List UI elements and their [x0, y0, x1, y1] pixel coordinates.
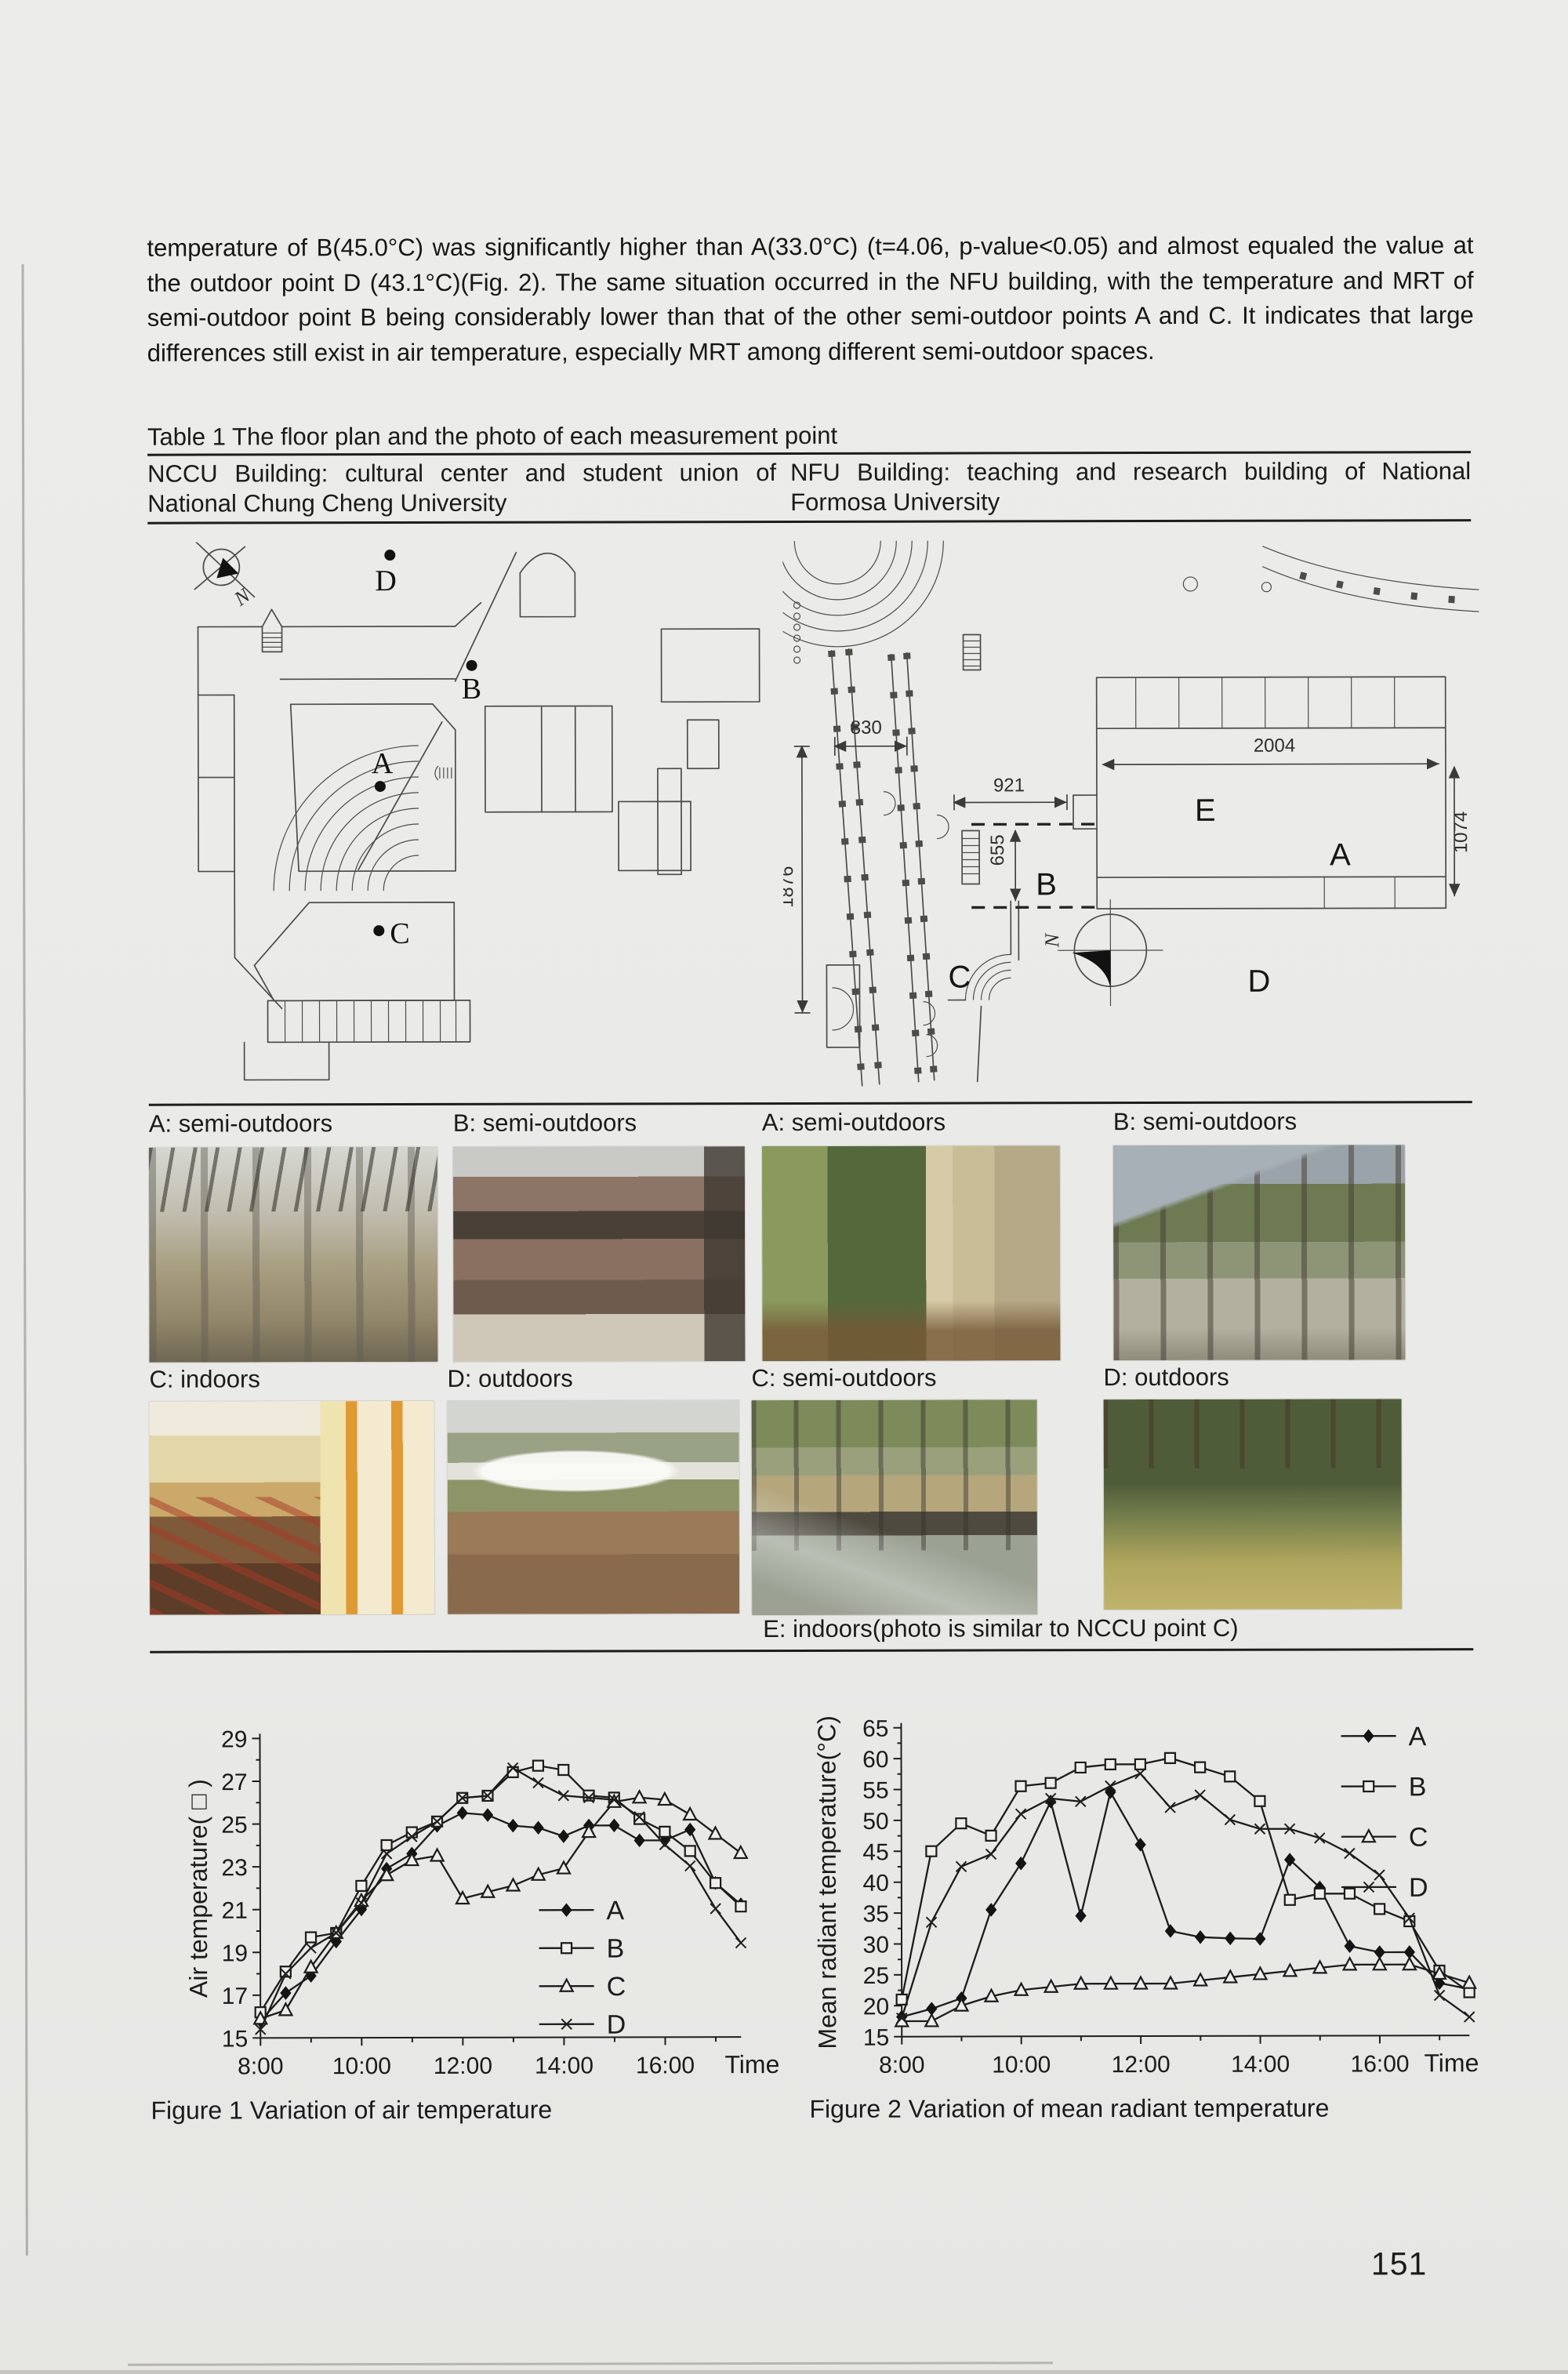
nccu-compass-icon: N — [194, 542, 255, 611]
diamond-marker-icon — [685, 1824, 695, 1836]
y-tick-label: 40 — [862, 1871, 888, 1897]
figure1-air-temperature-chart: 15171921232527298:0010:0012:0014:0016:00… — [180, 1714, 784, 2090]
caption-nfu-a: A: semi-outdoors — [762, 1109, 946, 1137]
square-marker-icon — [897, 1995, 907, 2005]
square-marker-icon — [306, 1933, 316, 1943]
y-tick-label: 65 — [862, 1716, 888, 1742]
square-marker-icon — [533, 1761, 543, 1771]
diamond-marker-icon — [1225, 1932, 1236, 1944]
nfu-dim-655: 655 — [987, 834, 1008, 866]
triangle-marker-icon — [709, 1827, 721, 1839]
x-tick-label: 8:00 — [238, 2053, 283, 2079]
table1-header-row: NCCU Building: cultural center and stude… — [147, 456, 1471, 519]
y-tick-label: 30 — [863, 1933, 889, 1958]
series-A-line — [260, 1813, 742, 2021]
square-marker-icon — [659, 1827, 670, 1837]
diamond-marker-icon — [1076, 1910, 1086, 1922]
nfu-compass-icon: N — [1040, 899, 1163, 1006]
square-marker-icon — [1374, 1904, 1385, 1914]
x-tick-label: 14:00 — [1231, 2052, 1290, 2078]
y-tick-label: 21 — [222, 1898, 248, 1924]
square-marker-icon — [558, 1765, 568, 1775]
scan-edge-artifact-bottom — [128, 2361, 1053, 2365]
x-tick-label: 12:00 — [434, 2053, 492, 2079]
square-marker-icon — [1076, 1762, 1086, 1773]
triangle-marker-icon — [684, 1808, 696, 1820]
diamond-marker-icon — [483, 1809, 493, 1821]
square-marker-icon — [1345, 1889, 1355, 1899]
square-marker-icon — [956, 1818, 966, 1828]
photo-nccu-d-outdoors — [448, 1400, 740, 1614]
nfu-dim-1876: 1876 — [782, 866, 797, 908]
y-axis — [260, 1733, 260, 2038]
caption-nccu-b: B: semi-outdoors — [453, 1109, 637, 1137]
nfu-point-d-label: D — [1247, 964, 1270, 999]
x-tick-label: 16:00 — [1350, 2051, 1409, 2077]
photo-nccu-c-indoors — [150, 1401, 435, 1615]
x-axis-title: Time — [724, 2050, 779, 2078]
triangle-marker-icon — [279, 2003, 292, 2015]
table1-title: Table 1 The floor plan and the photo of … — [147, 422, 837, 452]
y-tick-label: 15 — [222, 2026, 248, 2052]
nfu-dim-921: 921 — [993, 775, 1025, 796]
square-marker-icon — [1046, 1778, 1056, 1788]
x-tick-label: 12:00 — [1112, 2052, 1171, 2078]
y-tick-label: 17 — [222, 1984, 248, 2009]
y-tick-label: 55 — [862, 1778, 888, 1804]
table1-header-rule — [147, 519, 1471, 525]
scanned-paper-page: temperature of B(45.0°C) was significant… — [0, 0, 1568, 2374]
diamond-marker-icon — [1135, 1839, 1145, 1851]
figure1-caption: Figure 1 Variation of air temperature — [151, 2096, 552, 2125]
y-tick-label: 23 — [221, 1855, 247, 1881]
legend-label-D: D — [607, 2010, 626, 2040]
scan-bottom-band — [0, 2370, 1568, 2374]
nfu-point-c-label: C — [948, 960, 971, 995]
x-tick-label: 14:00 — [535, 2053, 593, 2079]
diamond-marker-icon — [609, 1819, 619, 1831]
square-marker-icon — [1225, 1771, 1235, 1781]
y-tick-label: 45 — [862, 1839, 888, 1865]
y-tick-label: 50 — [862, 1809, 888, 1835]
triangle-marker-icon — [506, 1879, 519, 1890]
nfu-floor-plan: 830 1876 921 655 B E A 2004 1074 — [782, 532, 1490, 1113]
figure2-mean-radiant-temperature-chart: 15202530354045505560658:0010:0012:0014:0… — [808, 1712, 1483, 2089]
y-tick-label: 60 — [862, 1747, 888, 1773]
diamond-marker-icon — [1363, 1730, 1374, 1742]
x-tick-label: 8:00 — [879, 2053, 924, 2078]
intro-paragraph: temperature of B(45.0°C) was significant… — [147, 228, 1473, 371]
nccu-point-d-dot — [384, 550, 395, 561]
square-marker-icon — [685, 1846, 695, 1856]
caption-nccu-a: A: semi-outdoors — [149, 1109, 332, 1138]
triangle-marker-icon — [633, 1791, 646, 1802]
square-marker-icon — [1165, 1753, 1175, 1763]
table1-bottom-rule — [150, 1648, 1473, 1653]
y-tick-label: 20 — [863, 1994, 889, 2020]
scan-edge-artifact — [22, 264, 28, 2256]
photo-nccu-b-semi-outdoors — [453, 1146, 746, 1362]
svg-text:N: N — [1040, 932, 1063, 948]
photo-nfu-b-semi-outdoors — [1113, 1145, 1406, 1360]
table1-header-nccu: NCCU Building: cultural center and stude… — [147, 458, 776, 519]
square-marker-icon — [1254, 1796, 1265, 1806]
photo-nfu-a-semi-outdoors — [762, 1145, 1061, 1361]
series-B-line — [902, 1758, 1470, 2000]
page-number: 151 — [1371, 2245, 1428, 2282]
square-marker-icon — [1135, 1759, 1145, 1770]
x-axis-title: Time — [1424, 2049, 1479, 2077]
legend-label-A: A — [1409, 1722, 1427, 1751]
legend-label-A: A — [606, 1896, 624, 1926]
x-axis — [260, 2037, 741, 2038]
diamond-marker-icon — [533, 1821, 543, 1834]
square-marker-icon — [926, 1846, 936, 1857]
table1-header-nfu: NFU Building: teaching and research buil… — [790, 456, 1471, 517]
page-content: temperature of B(45.0°C) was significant… — [0, 0, 1568, 2374]
diamond-marker-icon — [1165, 1925, 1175, 1937]
diamond-marker-icon — [561, 1904, 572, 1916]
diamond-marker-icon — [558, 1830, 568, 1842]
y-axis-title: Mean radiant temperature(°C) — [812, 1715, 841, 2049]
y-tick-label: 25 — [221, 1813, 247, 1839]
legend-label-B: B — [1409, 1772, 1427, 1802]
nfu-dim-2004: 2004 — [1254, 735, 1295, 757]
nccu-point-b-dot — [466, 660, 477, 671]
legend-label-C: C — [607, 1972, 626, 2002]
square-marker-icon — [1315, 1889, 1325, 1899]
diamond-marker-icon — [1196, 1931, 1206, 1944]
nccu-floor-plan: N D B A C — [179, 541, 768, 1099]
nccu-point-b-label: B — [462, 673, 481, 706]
nfu-point-e-label: E — [1195, 793, 1216, 828]
photo-nccu-a-semi-outdoors — [149, 1147, 438, 1363]
y-axis-title: Air temperature( □ ) — [184, 1779, 213, 1998]
y-tick-label: 15 — [863, 2025, 889, 2051]
diamond-marker-icon — [1345, 1940, 1355, 1952]
nccu-point-c-label: C — [390, 917, 409, 950]
x-tick-label: 16:00 — [636, 2053, 695, 2078]
y-tick-label: 29 — [221, 1726, 247, 1752]
x-tick-label: 10:00 — [992, 2052, 1051, 2078]
y-tick-label: 25 — [863, 1963, 889, 1989]
nfu-point-a-label: A — [1330, 837, 1351, 872]
square-marker-icon — [735, 1901, 746, 1911]
square-marker-icon — [382, 1840, 392, 1850]
legend-label-D: D — [1409, 1873, 1428, 1903]
square-marker-icon — [710, 1878, 720, 1888]
square-marker-icon — [1363, 1781, 1374, 1791]
legend-label-C: C — [1409, 1823, 1428, 1853]
square-marker-icon — [986, 1831, 996, 1841]
nfu-point-b-label: B — [1036, 867, 1057, 902]
nccu-point-c-dot — [373, 925, 384, 936]
square-marker-icon — [1105, 1759, 1116, 1770]
triangle-marker-icon — [735, 1846, 747, 1858]
series-D-line — [260, 1767, 742, 2029]
table1-top-rule — [147, 451, 1471, 456]
nfu-e-note: E: indoors(photo is similar to NCCU poin… — [763, 1614, 1239, 1643]
square-marker-icon — [1195, 1762, 1205, 1773]
nccu-point-a-dot — [375, 781, 386, 792]
y-tick-label: 35 — [863, 1901, 889, 1927]
nfu-dim-1074: 1074 — [1450, 811, 1472, 853]
x-tick-label: 10:00 — [332, 2053, 391, 2079]
triangle-marker-icon — [431, 1849, 444, 1860]
legend-label-B: B — [607, 1934, 625, 1964]
square-marker-icon — [584, 1791, 594, 1801]
nccu-point-d-label: D — [375, 564, 397, 597]
diamond-marker-icon — [634, 1834, 644, 1846]
photo-nfu-d-outdoors — [1104, 1399, 1403, 1610]
figure2-caption: Figure 2 Variation of mean radiant tempe… — [809, 2094, 1329, 2124]
caption-nccu-c: C: indoors — [149, 1365, 260, 1393]
svg-text:N: N — [229, 583, 255, 611]
photo-nfu-c-semi-outdoors — [752, 1399, 1038, 1615]
nfu-dim-830: 830 — [851, 717, 882, 739]
caption-nccu-d: D: outdoors — [447, 1365, 572, 1393]
square-marker-icon — [356, 1881, 366, 1891]
caption-nfu-d: D: outdoors — [1103, 1363, 1229, 1392]
square-marker-icon — [1285, 1895, 1295, 1905]
diamond-marker-icon — [508, 1820, 518, 1832]
diamond-marker-icon — [1255, 1933, 1265, 1945]
square-marker-icon — [1016, 1781, 1026, 1791]
y-tick-label: 19 — [222, 1940, 248, 1966]
caption-nfu-b: B: semi-outdoors — [1113, 1108, 1297, 1136]
x-axis — [902, 2035, 1469, 2037]
series-C-line — [902, 1965, 1469, 2021]
caption-nfu-c: C: semi-outdoors — [751, 1364, 936, 1392]
diamond-marker-icon — [457, 1806, 467, 1819]
nccu-point-a-label: A — [372, 747, 394, 780]
square-marker-icon — [561, 1943, 572, 1953]
y-tick-label: 27 — [221, 1770, 247, 1795]
